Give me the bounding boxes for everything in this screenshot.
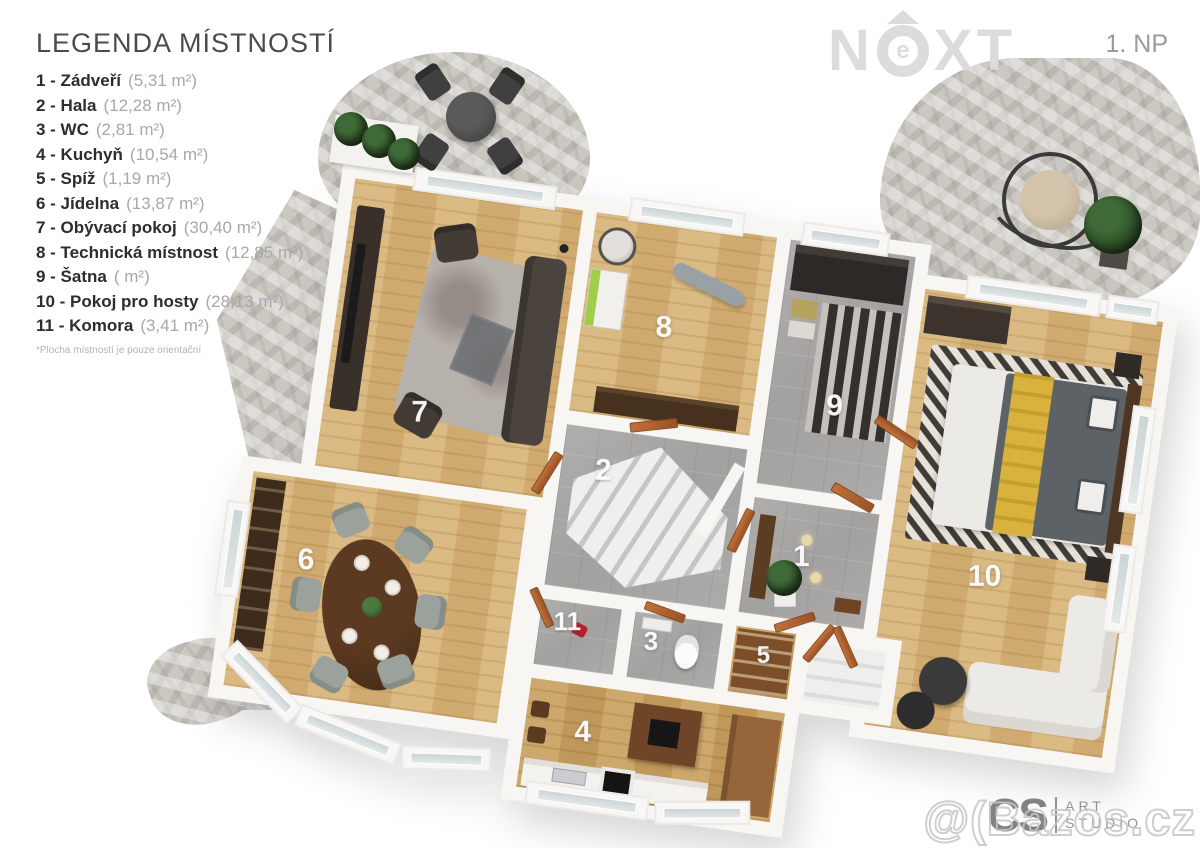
room-label-3: 3 xyxy=(642,625,661,658)
room-label-11: 11 xyxy=(552,604,584,639)
legend: LEGENDA MÍSTNOSTÍ 1 - Zádveří(5,31 m²) 2… xyxy=(36,28,335,356)
hedge-bush xyxy=(388,138,420,170)
legend-item: 6 - Jídelna(13,87 m²) xyxy=(36,192,335,217)
storage-box xyxy=(790,298,818,319)
legend-footnote: *Plocha místností je pouze orientační xyxy=(36,345,335,356)
logo-letter-t: T xyxy=(977,22,1014,80)
room-label-2: 2 xyxy=(593,453,614,489)
dining-chair xyxy=(413,593,447,631)
legend-item: 3 - WC(2,81 m²) xyxy=(36,118,335,143)
logo-circle-e-icon: e xyxy=(877,25,929,77)
potted-plant xyxy=(1084,196,1142,254)
room-label-5: 5 xyxy=(755,641,772,671)
legend-item: 1 - Zádveří(5,31 m²) xyxy=(36,69,335,94)
floor-label: 1. NP xyxy=(1105,30,1168,59)
bay-window xyxy=(296,706,400,764)
outdoor-table xyxy=(446,92,496,142)
legend-item: 11 - Komora(3,41 m²) xyxy=(36,314,335,339)
next-logo: N e X T xyxy=(828,22,1014,80)
bazos-watermark: @(Bazos.cz xyxy=(923,791,1196,846)
nightstand xyxy=(1113,352,1142,379)
logo-roof-icon xyxy=(887,10,919,24)
door xyxy=(629,418,678,433)
room-label-10: 10 xyxy=(966,558,1004,596)
bar-stool xyxy=(527,726,547,744)
bay-window xyxy=(656,803,748,823)
floorplan-page: 7 8 9 10 2 1 11 3 5 4 6 LEGENDA MÍSTNOST… xyxy=(0,0,1200,848)
legend-item: 4 - Kuchyň(10,54 m²) xyxy=(36,143,335,168)
logo-letter-x: X xyxy=(934,22,975,80)
legend-item: 9 - Šatna( m²) xyxy=(36,265,335,290)
porch-plant xyxy=(766,560,802,596)
room-label-9: 9 xyxy=(824,388,845,424)
cooktop xyxy=(647,719,680,749)
pillow xyxy=(1074,478,1108,516)
room-label-8: 8 xyxy=(653,310,674,346)
pillow xyxy=(1086,395,1120,433)
armchair xyxy=(433,222,480,263)
legend-item: 7 - Obývací pokoj(30,40 m²) xyxy=(36,216,335,241)
hanging-egg-chair xyxy=(1002,152,1098,248)
legend-item: 10 - Pokoj pro hosty(28,13 m²) xyxy=(36,290,335,315)
room-label-4: 4 xyxy=(572,714,593,750)
legend-list: 1 - Zádveří(5,31 m²) 2 - Hala(12,28 m²) … xyxy=(36,69,335,339)
washing-machine xyxy=(583,268,629,331)
storage-box xyxy=(788,320,816,339)
dining-chair xyxy=(289,576,323,614)
legend-item: 8 - Technická místnost(12,85 m²) xyxy=(36,241,335,266)
logo-letter-n: N xyxy=(828,22,872,80)
bar-stool xyxy=(530,700,550,718)
legend-item: 5 - Spíž(1,19 m²) xyxy=(36,167,335,192)
legend-item: 2 - Hala(12,28 m²) xyxy=(36,94,335,119)
room-label-7: 7 xyxy=(409,395,430,431)
nightstand xyxy=(1084,556,1113,583)
legend-title: LEGENDA MÍSTNOSTÍ xyxy=(36,28,335,59)
room-label-6: 6 xyxy=(295,542,316,578)
bay-window xyxy=(403,747,490,770)
